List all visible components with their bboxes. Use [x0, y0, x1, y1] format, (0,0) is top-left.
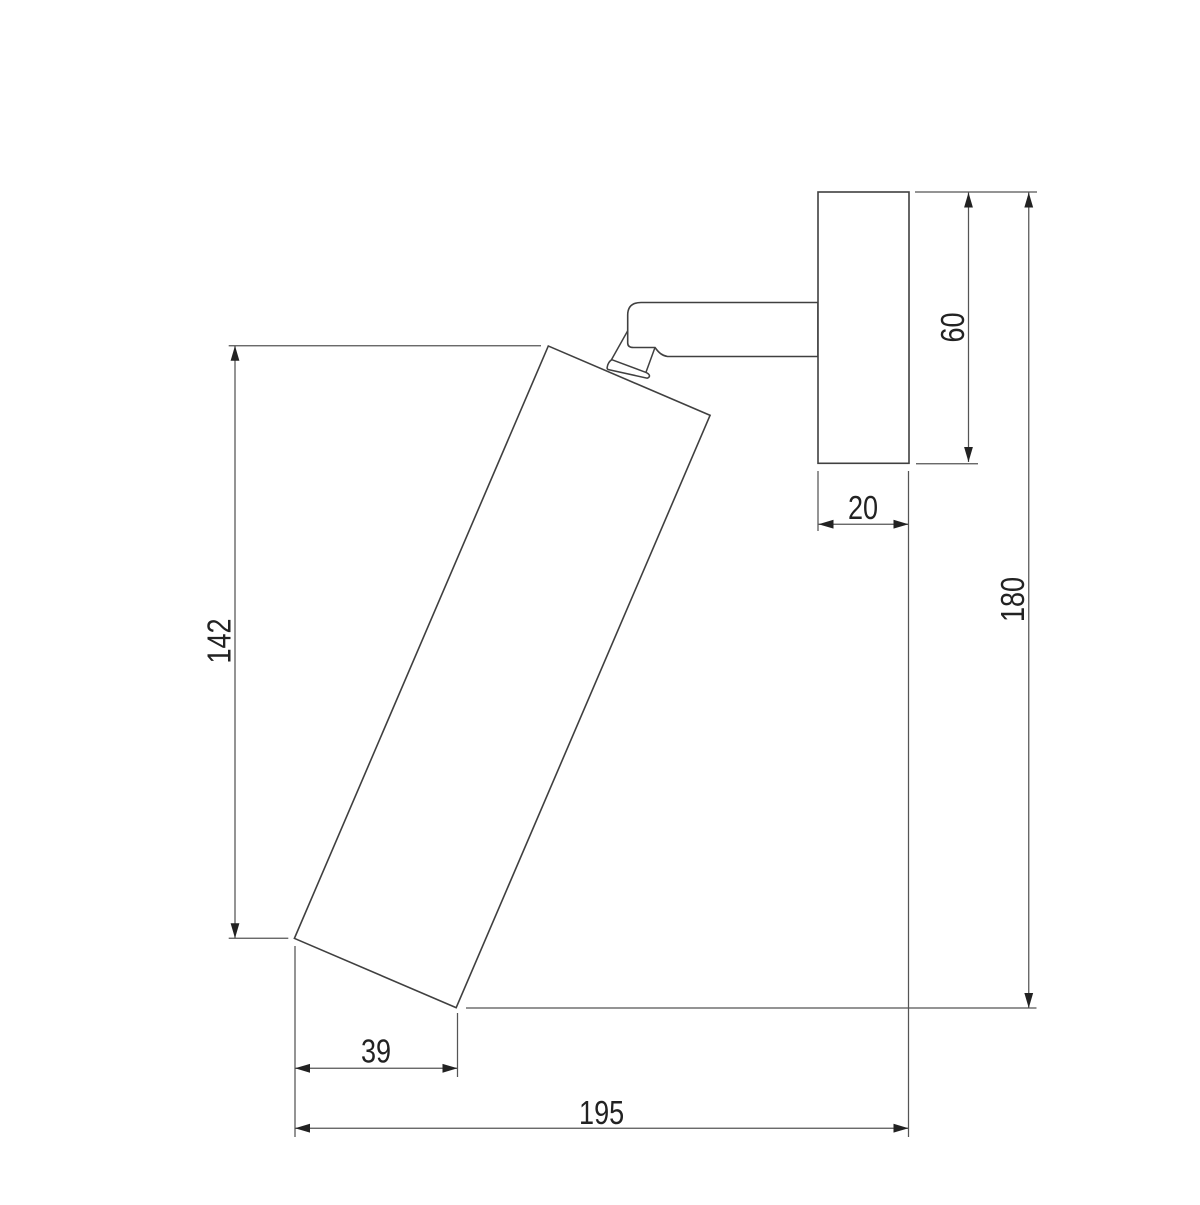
svg-text:195: 195	[579, 1095, 624, 1131]
svg-text:39: 39	[361, 1034, 391, 1070]
svg-text:60: 60	[935, 312, 971, 342]
svg-text:20: 20	[848, 490, 878, 526]
svg-text:180: 180	[995, 577, 1031, 622]
svg-text:142: 142	[202, 618, 238, 663]
